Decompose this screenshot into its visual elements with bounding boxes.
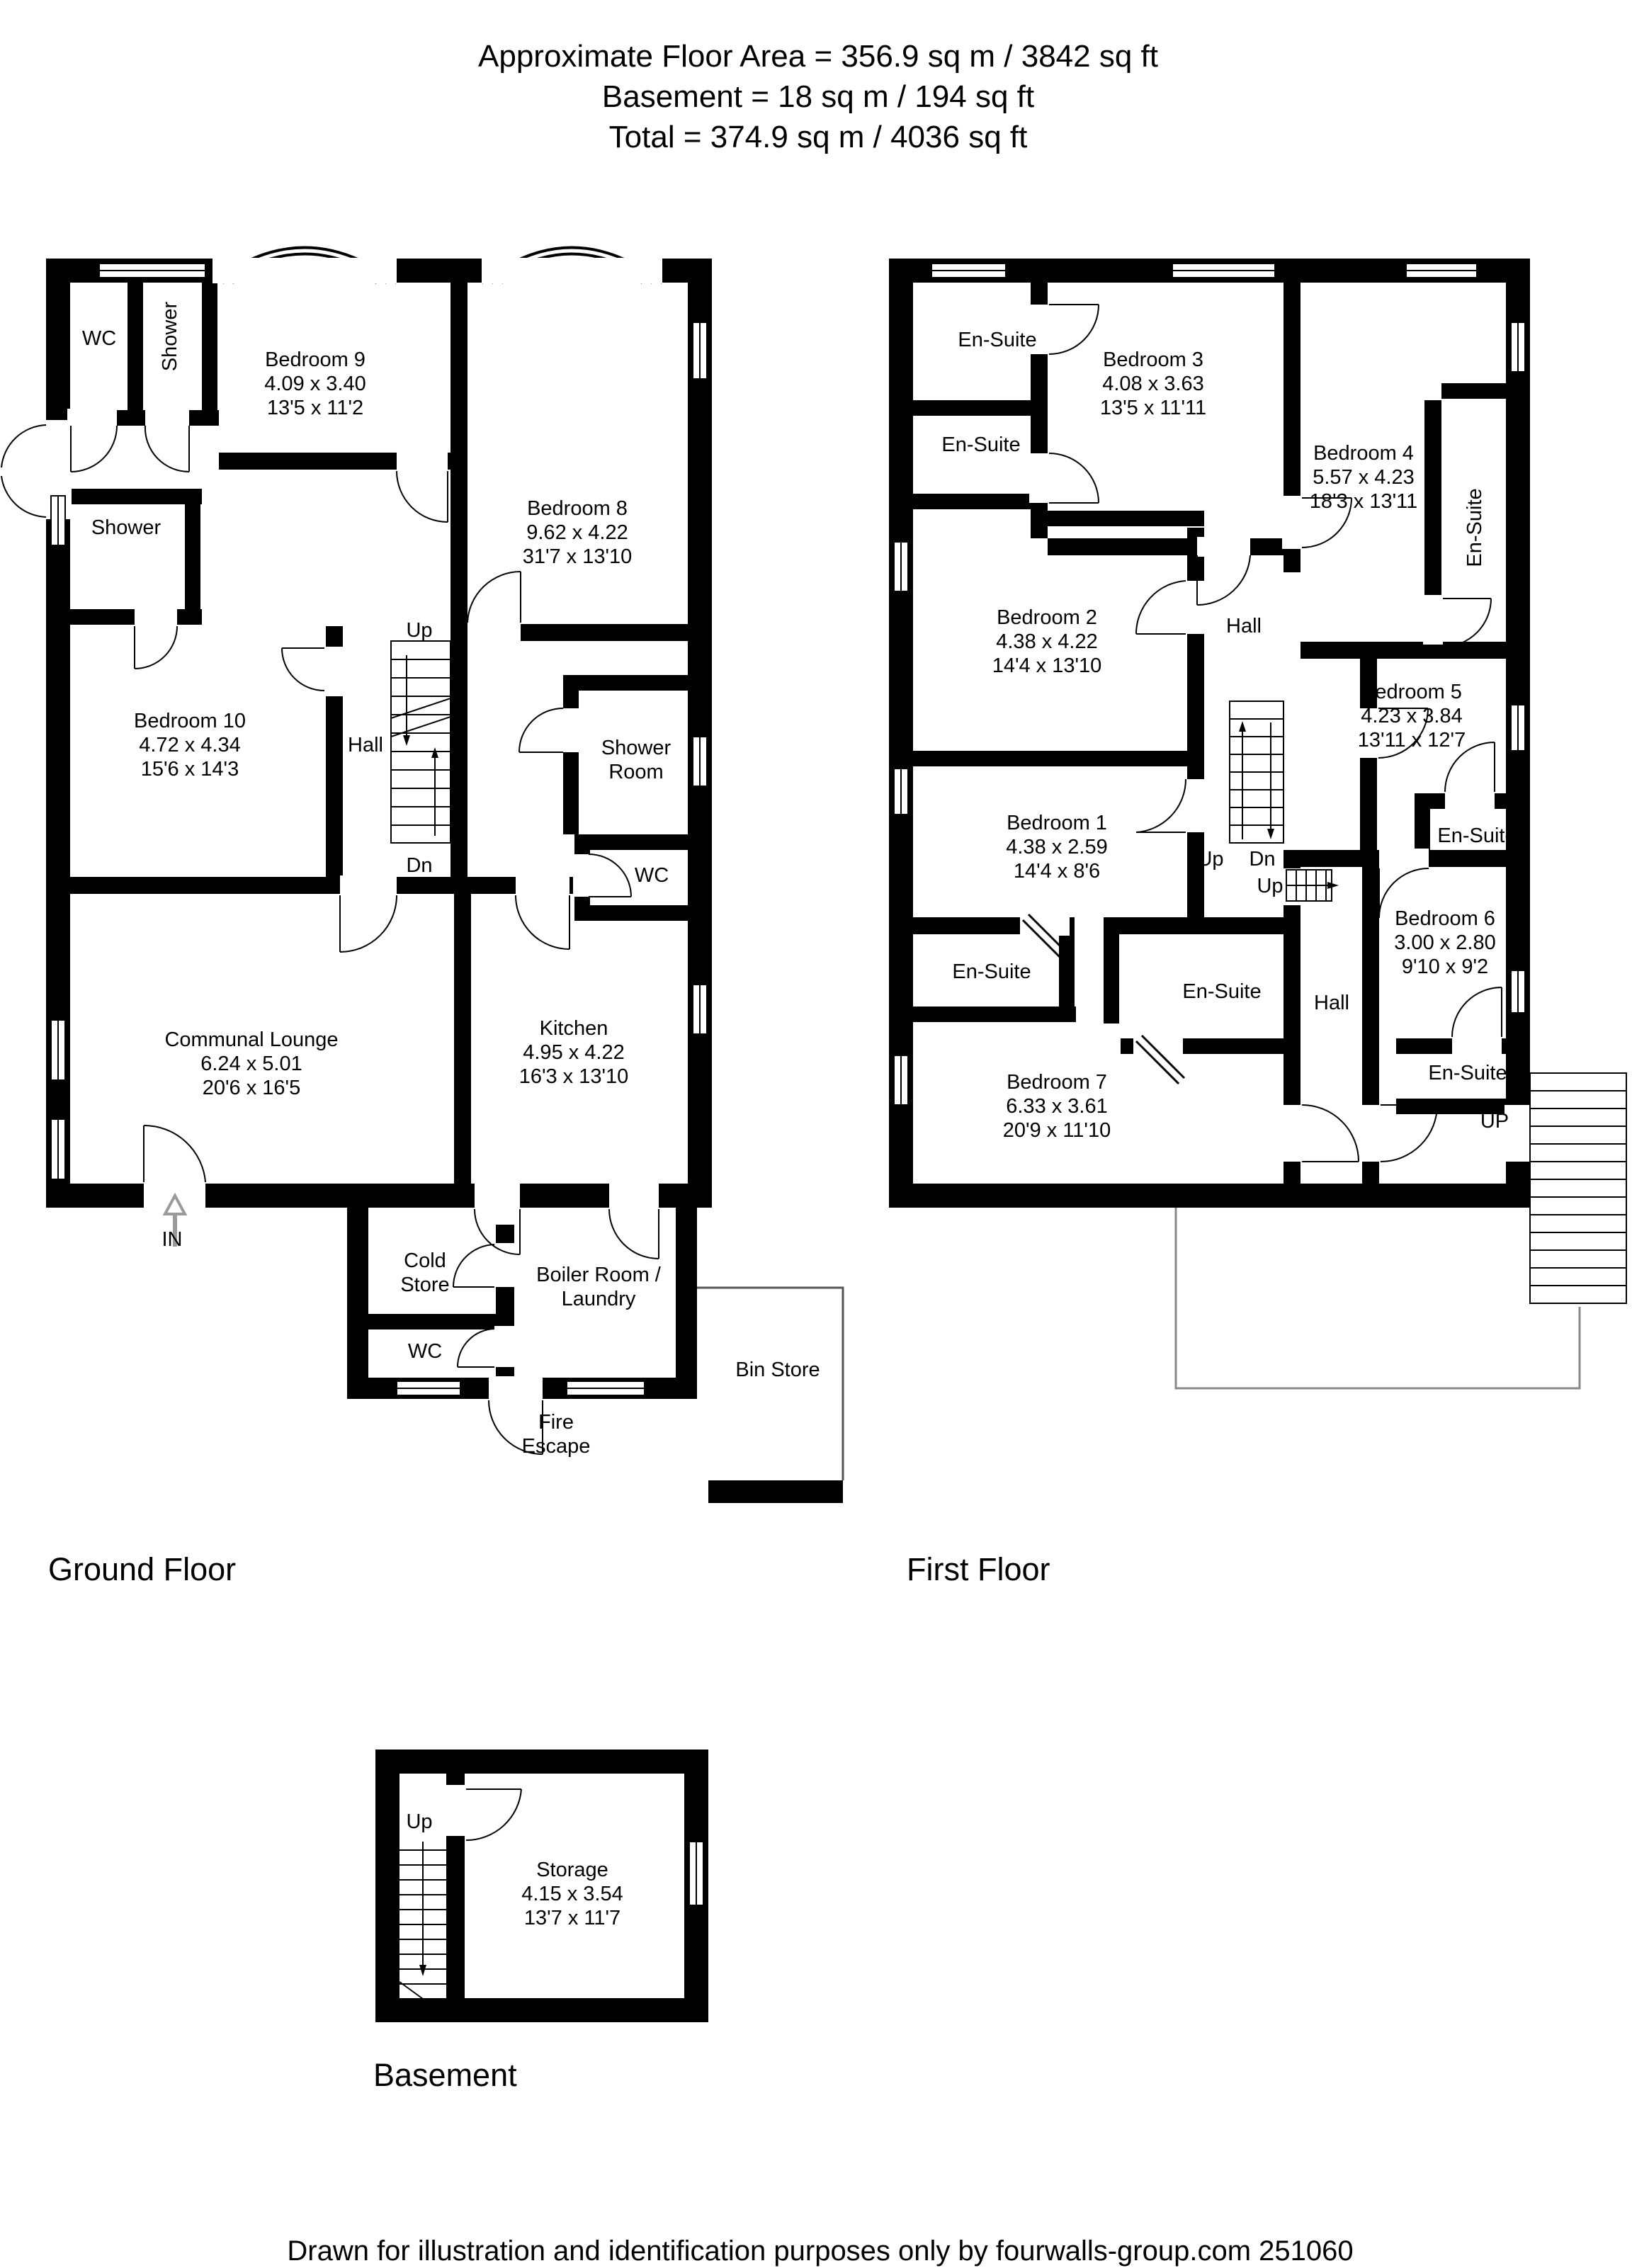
- ff-stairs-up2-label: Up: [1257, 874, 1283, 898]
- gf-room-label-bedroom10-imperial: 15'6 x 14'3: [141, 757, 239, 781]
- ff-stairs-up1-label: Up: [1197, 847, 1223, 871]
- gf-room-label-boiler-line2: Laundry: [562, 1287, 636, 1311]
- gf-room-label-shower-room-line1: Shower: [601, 736, 671, 760]
- ff-room-label-bedroom6-name: Bedroom 6: [1395, 907, 1495, 931]
- gf-room-label-wc-top: WC: [82, 327, 116, 351]
- bin-store-outline: [697, 1288, 843, 1480]
- gf-room-label-shower-top: Shower: [158, 302, 182, 371]
- gf-room-label-bedroom8-name: Bedroom 8: [527, 497, 628, 521]
- ff-room-label-bedroom1-metric: 4.38 x 2.59: [1006, 835, 1108, 859]
- ground-floor-title: Ground Floor: [48, 1551, 236, 1588]
- ff-room-label-ensuite-b1: En-Suite: [952, 960, 1031, 984]
- ff-room-label-hall-upper: Hall: [1226, 614, 1262, 638]
- gf-room-label-lounge-imperial: 20'6 x 16'5: [203, 1076, 300, 1100]
- bs-stairs-up-label: Up: [406, 1810, 432, 1834]
- bs-room-label-storage-metric: 4.15 x 3.54: [521, 1882, 623, 1906]
- gf-room-label-wc-bottom: WC: [408, 1339, 442, 1363]
- basement-window-symbols: [689, 1842, 703, 1905]
- ff-room-label-ensuite-b4: En-Suite: [1463, 488, 1487, 567]
- gf-room-label-cold-store-line1: Cold: [404, 1249, 446, 1273]
- external-stairs-and-terrace: [1176, 1073, 1626, 1388]
- gf-room-label-shower-mid: Shower: [91, 516, 161, 540]
- header-grand-total: Total = 374.9 sq m / 4036 sq ft: [609, 125, 1028, 149]
- gf-stairs-dn-label: Dn: [406, 854, 432, 878]
- basement-door-symbols: [466, 1789, 521, 1840]
- ff-external-up-label: UP: [1480, 1109, 1509, 1133]
- ff-stairs-dn-label: Dn: [1249, 847, 1275, 871]
- gf-room-label-wc-right: WC: [635, 863, 669, 888]
- ff-room-label-ensuite-b7: En-Suite: [1182, 980, 1261, 1004]
- gf-room-label-bedroom9-imperial: 13'5 x 11'2: [267, 396, 363, 420]
- ff-room-label-ensuite-b6: En-Suite: [1428, 1061, 1507, 1085]
- ff-room-label-bedroom1-name: Bedroom 1: [1007, 811, 1107, 835]
- ff-room-label-bedroom2-metric: 4.38 x 4.22: [996, 630, 1098, 654]
- gf-room-label-kitchen-name: Kitchen: [540, 1016, 608, 1041]
- gf-room-label-bedroom8-imperial: 31'7 x 13'10: [523, 545, 633, 569]
- ff-room-label-bedroom3-metric: 4.08 x 3.63: [1102, 372, 1204, 396]
- gf-label-fire-escape-line1: Fire: [538, 1410, 574, 1434]
- ground-floor-stairs: [391, 641, 450, 843]
- header-basement-area: Basement = 18 sq m / 194 sq ft: [602, 85, 1034, 109]
- gf-room-label-hall: Hall: [348, 733, 383, 757]
- basement-door-openings: [445, 1785, 466, 1836]
- ground-floor-door-symbols: [1, 425, 659, 1454]
- ff-room-label-bedroom6-imperial: 9'10 x 9'2: [1402, 955, 1488, 979]
- first-floor-title: First Floor: [907, 1551, 1050, 1588]
- floorplan-drawing: [0, 0, 1632, 2268]
- bs-room-label-storage-imperial: 13'7 x 11'7: [524, 1906, 620, 1930]
- ff-room-label-bedroom4-metric: 5.57 x 4.23: [1313, 465, 1415, 489]
- floorplan-page: Approximate Floor Area = 356.9 sq m / 38…: [0, 0, 1632, 2268]
- gf-stairs-up-label: Up: [406, 618, 432, 642]
- ff-room-label-bedroom7-imperial: 20'9 x 11'10: [1003, 1118, 1111, 1142]
- ff-room-label-hall-lower: Hall: [1314, 991, 1349, 1015]
- gf-room-label-bedroom9-name: Bedroom 9: [265, 348, 365, 372]
- ff-room-label-ensuite-top1: En-Suite: [958, 328, 1036, 352]
- ff-room-label-bedroom6-metric: 3.00 x 2.80: [1394, 931, 1496, 955]
- ground-floor-window-symbols: [51, 263, 707, 1395]
- ff-room-label-ensuite-b5: En-Suite: [1437, 824, 1516, 848]
- basement-title: Basement: [373, 2057, 517, 2094]
- ff-room-label-bedroom4-name: Bedroom 4: [1313, 441, 1414, 465]
- gf-room-label-kitchen-metric: 4.95 x 4.22: [523, 1041, 625, 1065]
- ff-room-label-bedroom5-imperial: 13'11 x 12'7: [1358, 728, 1466, 752]
- bs-room-label-storage-name: Storage: [536, 1858, 608, 1882]
- ff-room-label-bedroom4-imperial: 18'3 x 13'11: [1310, 489, 1417, 514]
- gf-label-fire-escape-line2: Escape: [522, 1434, 591, 1458]
- gf-room-label-cold-store-line2: Store: [400, 1273, 449, 1297]
- gf-room-label-bedroom8-metric: 9.62 x 4.22: [526, 521, 628, 545]
- ff-room-label-bedroom2-name: Bedroom 2: [997, 606, 1097, 630]
- gf-room-label-bedroom9-metric: 4.09 x 3.40: [264, 372, 366, 396]
- footer-credit: Drawn for illustration and identificatio…: [287, 2239, 1353, 2263]
- ff-room-label-bedroom7-metric: 6.33 x 3.61: [1006, 1094, 1108, 1118]
- gf-room-label-bin-store: Bin Store: [735, 1358, 820, 1382]
- gf-room-label-bedroom10-metric: 4.72 x 4.34: [139, 733, 241, 757]
- ff-room-label-bedroom5-name: Bedroom 5: [1361, 680, 1462, 704]
- header-total-area: Approximate Floor Area = 356.9 sq m / 38…: [478, 45, 1158, 69]
- ff-room-label-bedroom3-name: Bedroom 3: [1103, 348, 1203, 372]
- gf-room-label-kitchen-imperial: 16'3 x 13'10: [519, 1065, 629, 1089]
- ff-room-label-bedroom3-imperial: 13'5 x 11'11: [1100, 396, 1206, 420]
- ground-floor-walls: [46, 259, 843, 1503]
- ff-room-label-bedroom7-name: Bedroom 7: [1007, 1070, 1107, 1094]
- ff-room-label-bedroom2-imperial: 14'4 x 13'10: [992, 654, 1102, 678]
- ff-room-label-bedroom5-metric: 4.23 x 3.84: [1361, 704, 1463, 728]
- basement-stairs: [399, 1842, 446, 2016]
- gf-room-label-shower-room-line2: Room: [608, 760, 663, 784]
- ff-room-label-bedroom1-imperial: 14'4 x 8'6: [1014, 859, 1100, 883]
- ff-room-label-ensuite-top2: En-Suite: [941, 433, 1020, 457]
- gf-entrance-in-label: IN: [162, 1227, 183, 1252]
- gf-room-label-bedroom10-name: Bedroom 10: [134, 709, 246, 733]
- gf-room-label-lounge-name: Communal Lounge: [164, 1028, 338, 1052]
- gf-room-label-lounge-metric: 6.24 x 5.01: [200, 1052, 302, 1076]
- gf-room-label-boiler-line1: Boiler Room /: [536, 1263, 661, 1287]
